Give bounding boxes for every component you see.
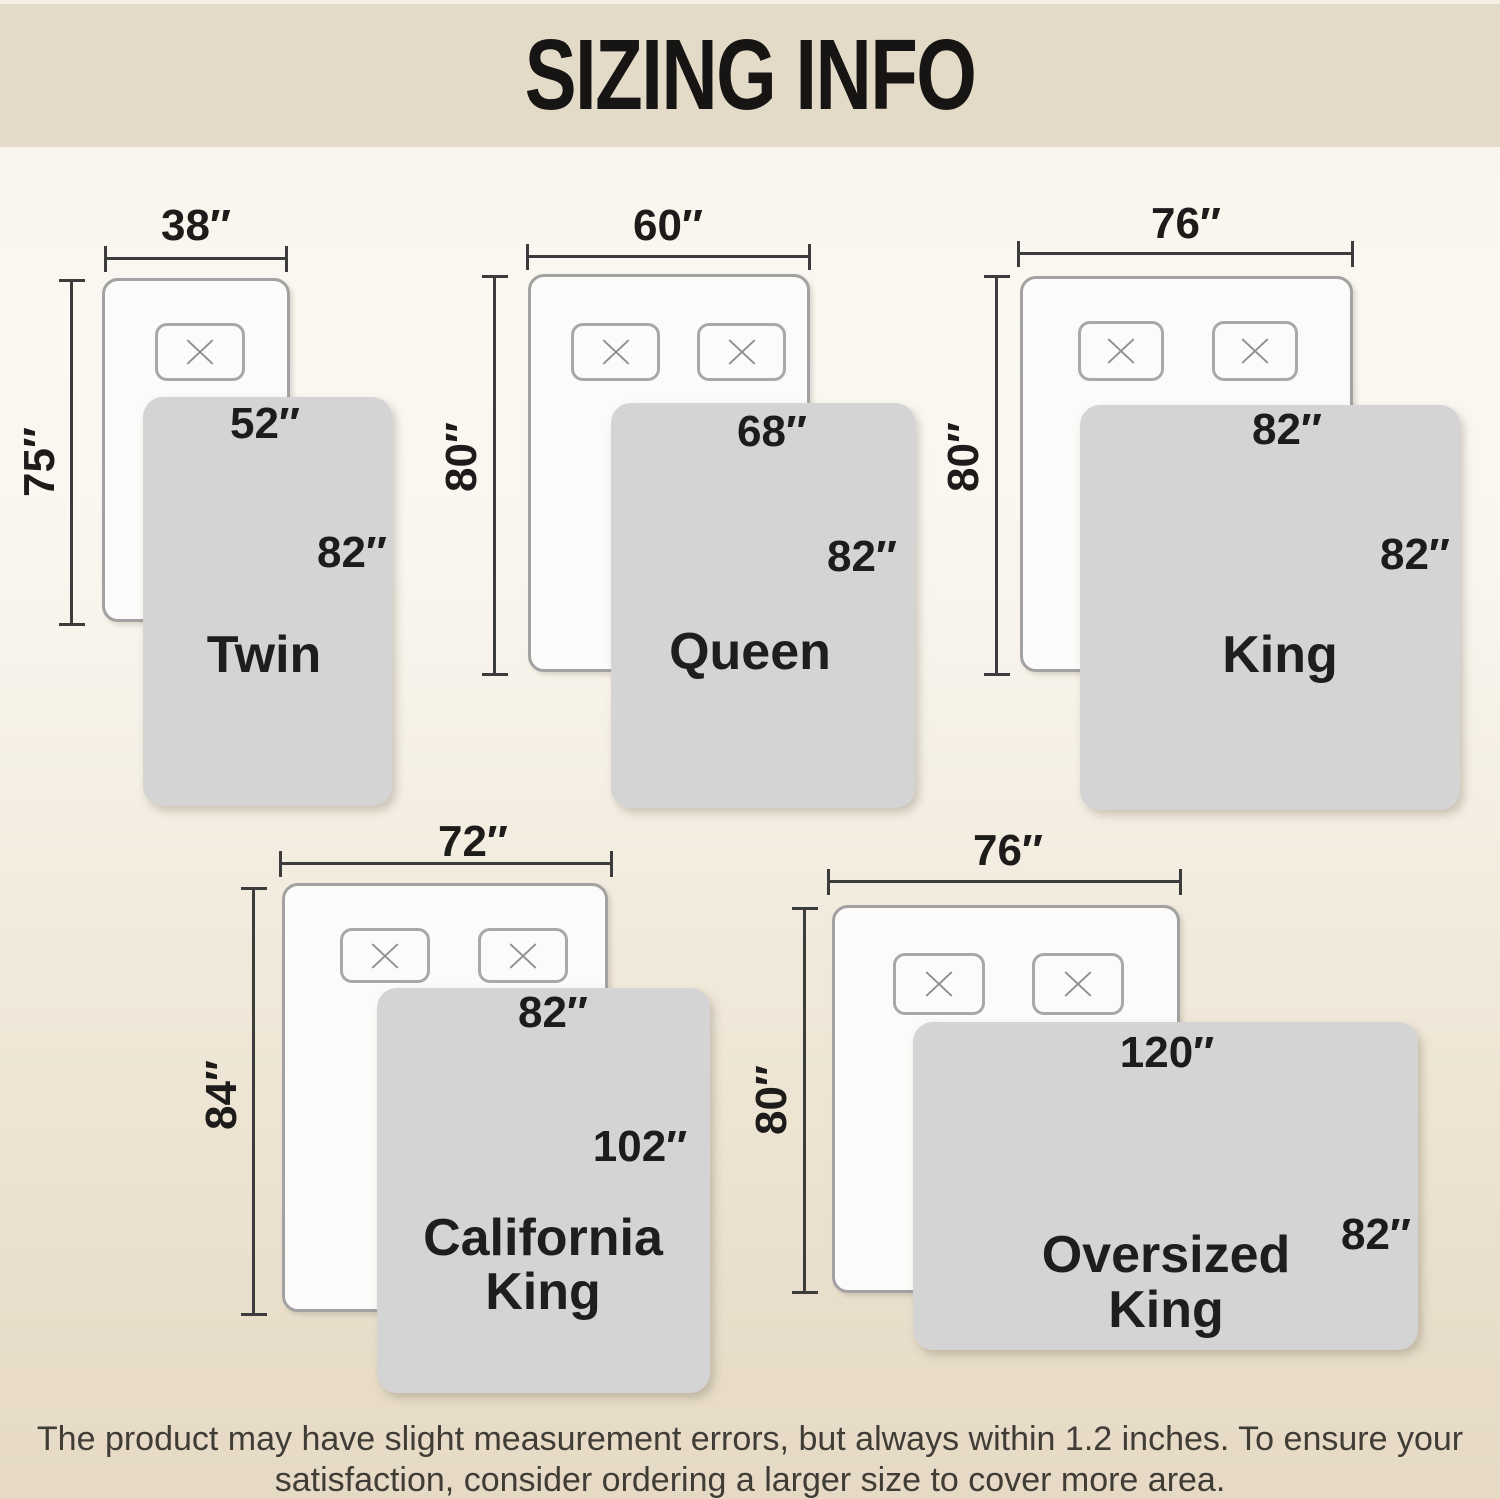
oversized-king-length-label: 80″ <box>747 1065 797 1135</box>
king-size-name: King <box>1222 625 1338 685</box>
king-width-label: 76″ <box>1151 199 1221 249</box>
california-king-blanket <box>377 988 710 1393</box>
pillow <box>1212 321 1298 381</box>
pillow-x-icon <box>599 337 633 367</box>
pillow-x-icon <box>725 337 759 367</box>
pillow <box>155 323 245 381</box>
king-blanket-width-label: 82″ <box>1252 405 1322 455</box>
oversized-king-size-name-line2: King <box>1108 1280 1224 1340</box>
california-king-width-label: 72″ <box>438 817 508 867</box>
twin-size-name: Twin <box>207 625 322 685</box>
oversized-king-width-label: 76″ <box>973 826 1043 876</box>
pillow-x-icon <box>368 941 402 971</box>
twin-width-label: 38″ <box>161 201 231 251</box>
california-king-size-name-line1: California <box>423 1208 663 1268</box>
header-banner: SIZING INFO <box>0 4 1500 147</box>
page-title: SIZING INFO <box>525 18 976 133</box>
twin-blanket-width-label: 52″ <box>230 399 300 449</box>
california-king-blanket-width-label: 82″ <box>518 988 588 1038</box>
queen-blanket-width-label: 68″ <box>737 407 807 457</box>
disclaimer-line1: The product may have slight measurement … <box>0 1420 1500 1459</box>
disclaimer-line2: satisfaction, consider ordering a larger… <box>0 1461 1500 1499</box>
pillow-x-icon <box>183 337 217 367</box>
pillow <box>478 928 568 983</box>
oversized-king-blanket-length-label: 82″ <box>1341 1210 1411 1260</box>
queen-size-name: Queen <box>669 622 831 682</box>
twin-length-label: 75″ <box>15 427 65 497</box>
king-length-label: 80″ <box>939 422 989 492</box>
queen-width-dimension-line <box>527 255 810 258</box>
california-king-length-label: 84″ <box>197 1060 247 1130</box>
oversized-king-length-dimension-line <box>803 908 806 1293</box>
pillow-x-icon <box>1061 969 1095 999</box>
pillow <box>340 928 430 983</box>
oversized-king-size-name-line1: Oversized <box>1042 1225 1291 1285</box>
queen-width-label: 60″ <box>633 201 703 251</box>
pillow <box>893 953 985 1015</box>
twin-length-dimension-line <box>70 280 73 625</box>
twin-blanket-length-label: 82″ <box>317 528 387 578</box>
pillow <box>571 323 660 381</box>
queen-length-dimension-line <box>493 276 496 675</box>
king-blanket-length-label: 82″ <box>1380 530 1450 580</box>
pillow <box>1032 953 1124 1015</box>
pillow <box>1078 321 1164 381</box>
pillow-x-icon <box>1238 336 1272 366</box>
king-length-dimension-line <box>995 276 998 675</box>
twin-blanket <box>143 397 392 806</box>
sizing-info-infographic: SIZING INFO 38″ 75″ 52″ 82″ Twin 60″ 80″ <box>0 0 1500 1499</box>
twin-width-dimension-line <box>105 257 287 260</box>
pillow-x-icon <box>506 941 540 971</box>
california-king-size-name-line2: King <box>485 1262 601 1322</box>
pillow-x-icon <box>922 969 956 999</box>
king-blanket <box>1080 405 1460 810</box>
oversized-king-blanket-width-label: 120″ <box>1120 1028 1215 1078</box>
queen-length-label: 80″ <box>437 422 487 492</box>
king-width-dimension-line <box>1018 252 1353 255</box>
california-king-blanket-length-label: 102″ <box>593 1122 688 1172</box>
oversized-king-width-dimension-line <box>828 880 1181 883</box>
california-king-length-dimension-line <box>252 888 255 1315</box>
queen-blanket <box>611 403 915 808</box>
pillow-x-icon <box>1104 336 1138 366</box>
pillow <box>697 323 786 381</box>
queen-blanket-length-label: 82″ <box>827 532 897 582</box>
